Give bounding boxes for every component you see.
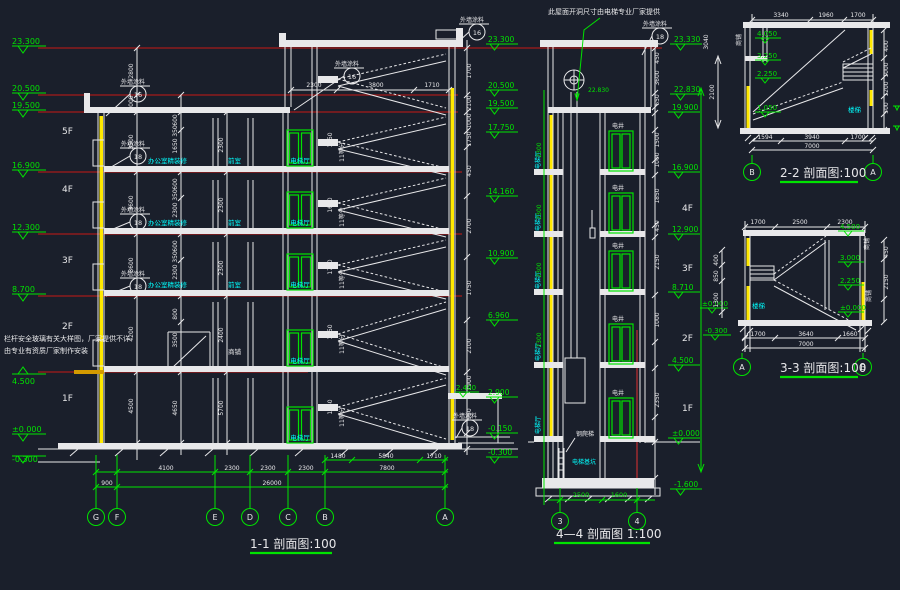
dim-label: 3640	[798, 331, 813, 338]
room-label: 前室	[228, 218, 242, 227]
dim-label: 1700	[850, 134, 865, 141]
axis-bubble-label: G	[93, 513, 99, 522]
level-label: 4.050	[757, 30, 777, 38]
stair-dim-label: 1750	[327, 399, 334, 414]
level-label: 2.900	[488, 388, 510, 397]
svg-text:外墙涂料: 外墙涂料	[121, 140, 145, 148]
room-label: 商铺	[863, 238, 871, 250]
section-title: 2-2 剖面图:100	[780, 166, 866, 182]
axis-bubble-label: F	[115, 513, 120, 522]
door	[609, 324, 633, 364]
level-label: 19.500	[12, 101, 40, 110]
level-label: 23.330	[674, 35, 700, 44]
stair-dim-label: 1650	[327, 324, 334, 339]
dim-label: 2100	[709, 84, 716, 99]
dim-label: 3940	[804, 134, 819, 141]
svg-text:外墙涂料: 外墙涂料	[335, 60, 359, 68]
level-label: 14.160	[488, 187, 514, 196]
dim-label: 500	[883, 102, 890, 114]
dim-label: 2300	[218, 137, 225, 152]
room-label: 商铺	[865, 290, 873, 302]
section-2-2: 3340 1960 1700 3040 商铺 楼梯 4.050 3.250 2.…	[703, 12, 900, 182]
dim-label: 2300	[172, 264, 179, 279]
room-label: 办公室精装修	[148, 156, 188, 165]
svg-text:外墙涂料: 外墙涂料	[121, 270, 145, 278]
elevator-shaft	[528, 92, 700, 502]
door	[609, 398, 633, 438]
paint-callout: 外墙涂料18	[106, 140, 150, 170]
section-4-4: 22.830 电井 电井 电井	[528, 7, 704, 543]
floor-label: 2F	[682, 334, 693, 344]
level-label: 17.750	[488, 123, 514, 132]
svg-text:18: 18	[134, 283, 142, 291]
level-label: 23.300	[488, 35, 514, 44]
dim-label: 450	[883, 246, 890, 258]
axis-bubble-label: C	[285, 513, 291, 522]
floor-label: 3F	[682, 264, 693, 274]
dim-label: 26000	[262, 480, 281, 487]
level-label: 20.500	[12, 84, 40, 93]
axis-bubbles: G F E D C B A	[88, 509, 454, 526]
level-label: 4.500	[672, 356, 694, 365]
dim-label: 2300	[218, 197, 225, 212]
dim-label: 1480	[330, 453, 345, 460]
level-label: 4.500	[12, 377, 35, 386]
dim-label: 3040	[703, 34, 710, 49]
dim-label: 2300	[224, 465, 239, 472]
level-label: ±0.000	[12, 425, 42, 434]
level-label: 8.710	[672, 283, 694, 292]
elevation-markers: 23.330 22.830 19.900 16.900 12.900 8.710…	[668, 35, 702, 495]
shaft-label: 电井	[612, 389, 624, 397]
axis-bubble-label: 4	[634, 517, 639, 526]
dim-label: 400	[713, 254, 720, 266]
dim-label: 1700	[750, 219, 765, 226]
dim-label: 800	[172, 308, 179, 320]
dim-label: 1700	[850, 12, 865, 19]
paint-callout: 外墙涂料18	[642, 20, 672, 55]
room-label: 电梯厅	[290, 356, 310, 365]
floor-label: 1F	[62, 394, 73, 404]
dim-label: 1000	[654, 152, 661, 167]
dim-label: 2800	[128, 63, 135, 78]
room-label: 商铺	[735, 34, 743, 46]
dim-label: 900	[101, 480, 113, 487]
building-outline	[38, 28, 518, 462]
level-label: -1.600	[674, 480, 698, 489]
svg-text:外墙涂料: 外墙涂料	[453, 412, 477, 420]
level-label: 3.250	[757, 52, 777, 60]
bottom-dimensions: 2500 1600 3 4	[548, 488, 655, 530]
dim-label: 2300	[536, 262, 543, 277]
left-dimension-chain: 2300 2300 2300 2300	[536, 90, 544, 505]
room-label: 前室	[228, 280, 242, 289]
dim-label: 1850	[654, 188, 661, 203]
dim-label: 3340	[773, 12, 788, 19]
level-label: 23.300	[12, 37, 40, 46]
right-dimension-chain: 450 3600 650 1500 1000 1850 450 2150 100…	[652, 45, 661, 495]
dim-label: 650	[654, 94, 661, 106]
room-label: 办公室精装修	[148, 280, 188, 289]
shaft-label: 电井	[612, 315, 624, 323]
dim-label: 2500	[792, 219, 807, 226]
stair-flights: 1750 1650 1750 1650 1750 11等分 11等分 11等分 …	[318, 54, 446, 446]
stair-dim-label: 1750	[327, 259, 334, 274]
dim-label: 1750	[466, 131, 473, 146]
dim-label: 400	[883, 40, 890, 52]
stair-dim-label: 1650	[327, 197, 334, 212]
dim-label: 2100	[466, 338, 473, 353]
dim-label: 1660	[842, 331, 857, 338]
floor-label: 3F	[62, 256, 73, 266]
dim-label: 7800	[379, 465, 394, 472]
room-label: 商铺	[228, 347, 242, 356]
dim-label: 1000	[654, 312, 661, 327]
svg-text:外墙涂料: 外墙涂料	[643, 20, 667, 28]
level-label: 2.250	[757, 70, 777, 78]
level-label: 8.700	[12, 285, 35, 294]
pit-label: 电梯基坑	[572, 458, 596, 466]
section-title: 3-3 剖面图:100	[780, 361, 866, 377]
section-title-text: 4—4 剖面图 1:100	[556, 527, 661, 541]
left-elevation-markers: 23.300 20.500 19.500 16.900 12.300 8.700…	[12, 37, 46, 464]
note-line: 由专业有资质厂家制作安装	[4, 346, 88, 355]
axis-bubble-label: D	[247, 513, 253, 522]
dim-label: 3800	[368, 82, 383, 89]
svg-text:18: 18	[466, 425, 474, 433]
room-label: 办公室精装修	[148, 218, 188, 227]
axis-bubble-label: 3	[557, 517, 562, 526]
section-title-text: 2-2 剖面图:100	[780, 166, 866, 180]
note-line: 此屋面开洞尺寸由电梯专业厂家提供	[548, 7, 660, 16]
dim-label: 2300	[218, 260, 225, 275]
dim-label: 4650	[172, 400, 179, 415]
stair-equal-label: 11等分	[338, 207, 346, 227]
level-label: 4.500	[840, 223, 860, 231]
svg-text:16: 16	[134, 91, 142, 99]
dim-label: 850	[713, 270, 720, 282]
stair-equal-label: 11等分	[338, 142, 346, 162]
dim-label: 2500	[573, 491, 590, 499]
stair-equal-label: 11等分	[338, 334, 346, 354]
section-title-text: 1-1 剖面图:100	[250, 537, 336, 551]
room-label: 电梯厅	[290, 156, 310, 165]
machine-level-label: 22.830	[588, 87, 609, 94]
dim-label: 4500	[128, 398, 135, 413]
dim-label: 450	[654, 52, 661, 64]
level-label: 3.000	[840, 254, 860, 262]
dim-label: 3600	[654, 70, 661, 85]
dim-label: 1594	[757, 134, 772, 141]
dim-label: 1200	[883, 81, 890, 96]
dim-label: 1710	[426, 453, 441, 460]
dim-label: 600	[172, 178, 179, 190]
dim-label: 2400	[218, 327, 225, 342]
dim-label: 1300	[713, 292, 720, 307]
level-label: ±0.000	[840, 304, 866, 312]
top-dimension: 3340 1960 1700 3040	[703, 12, 876, 50]
svg-text:16: 16	[473, 29, 481, 37]
dim-label: 2300	[298, 465, 313, 472]
level-label: ±0.000	[672, 429, 700, 438]
floor-label: 2F	[62, 322, 73, 332]
floor-label: 4F	[682, 204, 693, 214]
dim-label: 2700	[466, 218, 473, 233]
level-label: 12.300	[12, 223, 40, 232]
dim-label: 2150	[654, 254, 661, 269]
dim-label: 2150	[883, 274, 890, 289]
door	[609, 251, 633, 291]
shaft-label: 电井	[612, 242, 624, 250]
dim-label: 600	[172, 240, 179, 252]
axis-bubble-label: B	[322, 513, 328, 522]
shaft-label: 电井	[612, 184, 624, 192]
dim-label: 7000	[798, 341, 813, 348]
svg-text:外墙涂料: 外墙涂料	[121, 206, 145, 214]
dim-label: 1650	[172, 138, 179, 153]
dim-label: 5700	[218, 400, 225, 415]
paint-callout: 外墙涂料16	[294, 60, 364, 110]
bottom-dimensions: 4100 2300 2300 2300 7800 1480 5840 1710 …	[88, 453, 454, 526]
level-label: 22.830	[674, 85, 700, 94]
level-label: 16.900	[12, 161, 40, 170]
cad-drawing: 23.300 20.500 19.500 16.900 12.300 8.700…	[0, 0, 900, 590]
svg-text:外墙涂料: 外墙涂料	[121, 78, 145, 86]
section-title-text: 3-3 剖面图:100	[780, 361, 866, 375]
room-label: 电梯厅	[290, 433, 310, 442]
dim-label: 7000	[804, 143, 819, 150]
svg-text:16: 16	[348, 73, 356, 81]
dim-label: 350	[172, 251, 179, 263]
section-title: 1-1 剖面图:100	[250, 537, 336, 553]
level-label: -0.150	[488, 424, 512, 433]
room-label: 楼梯	[848, 105, 862, 114]
dim-label: 2300	[536, 142, 543, 157]
room-label: 电梯厅	[290, 218, 310, 227]
dim-label: 450	[466, 165, 473, 177]
floor-label: 4F	[62, 185, 73, 195]
dim-label: 2100	[466, 95, 473, 110]
dim-label: 2300	[260, 465, 275, 472]
paint-annotations: 外墙涂料16 外墙涂料16 外墙涂料16 外墙涂料18 外墙涂料18 外墙涂料1…	[106, 16, 489, 438]
level-label: 20.500	[488, 81, 514, 90]
dim-label: 1960	[818, 12, 833, 19]
dim-label: 1600	[611, 491, 628, 499]
section-title: 4—4 剖面图 1:100	[554, 527, 661, 543]
level-label: 19.500	[488, 99, 514, 108]
floor-label: 1F	[682, 404, 693, 414]
dim-label: 1500	[654, 132, 661, 147]
ladder-label: 钢爬梯	[576, 430, 594, 438]
dim-label: 350	[172, 189, 179, 201]
svg-text:18: 18	[134, 219, 142, 227]
axis-bubble-label: A	[739, 363, 745, 372]
level-label: -0.300	[705, 327, 728, 335]
dim-label: 1710	[424, 82, 439, 89]
room-label: 电梯厅	[290, 280, 310, 289]
level-label: 12.900	[672, 225, 698, 234]
level-label: 10.900	[488, 249, 514, 258]
dim-label: 1700	[466, 63, 473, 78]
dim-label: 2350	[654, 392, 661, 407]
dim-label: 600	[172, 114, 179, 126]
note-text: 栏杆安全玻璃有关大样图，厂家提供不详 由专业有资质厂家制作安装	[4, 334, 130, 355]
door	[609, 131, 633, 171]
pit-labels: 钢爬梯 电梯基坑	[566, 430, 596, 466]
axis-bubble-label: A	[870, 168, 876, 177]
building-outline: 商铺 楼梯	[735, 22, 890, 141]
dim-label: 4100	[158, 465, 173, 472]
level-label: 2.250	[840, 277, 860, 285]
stair-equal-label: 11等分	[338, 407, 346, 427]
dim-label: 2300	[536, 204, 543, 219]
svg-text:外墙涂料: 外墙涂料	[460, 16, 484, 24]
dim-label: 1700	[750, 331, 765, 338]
dim-label: 1000	[466, 113, 473, 128]
room-label: 楼梯	[752, 301, 766, 310]
stair-dim-label: 1750	[327, 132, 334, 147]
floor-labels: 5F 4F 3F 2F 1F	[62, 127, 73, 404]
room-label: 电梯厅	[534, 416, 542, 434]
canopy-level-label: 2.400	[456, 384, 476, 392]
stair-equal-label: 11等分	[338, 269, 346, 289]
dim-label: 350	[172, 125, 179, 137]
door	[609, 193, 633, 233]
dim-label: 3500	[172, 332, 179, 347]
tower-dimension: 2300 3800 1710	[288, 82, 452, 93]
cad-drawing-canvas[interactable]: 23.300 20.500 19.500 16.900 12.300 8.700…	[0, 0, 900, 590]
level-label: 19.900	[672, 103, 698, 112]
shaft-label: 电井	[612, 122, 624, 130]
dim-label: 1000	[883, 62, 890, 77]
section-3-3: 1700 2500 2300 商铺 商铺 楼梯 4.500 3.000 2.25…	[700, 219, 890, 377]
dim-label: 5840	[378, 453, 393, 460]
axis-bubble-label: E	[212, 513, 217, 522]
dim-label: 1750	[466, 280, 473, 295]
dim-label: 2300	[172, 202, 179, 217]
svg-text:18: 18	[656, 33, 664, 41]
room-label: 前室	[228, 156, 242, 165]
dim-label: 2300	[306, 82, 321, 89]
axis-bubble-label: B	[749, 168, 755, 177]
dim-label: 450	[654, 220, 661, 232]
svg-text:18: 18	[134, 153, 142, 161]
level-label: -0.300	[488, 448, 512, 457]
level-label: 16.900	[672, 163, 698, 172]
level-label: 1.050	[757, 104, 777, 112]
floor-label: 5F	[62, 127, 73, 137]
dim-label: 2300	[536, 332, 543, 347]
level-label: 6.960	[488, 311, 510, 320]
note-line: 栏杆安全玻璃有关大样图，厂家提供不详	[4, 334, 130, 343]
axis-bubble-label: A	[442, 513, 448, 522]
elevation-markers: 4.050 3.250 2.250 1.050	[755, 30, 781, 117]
